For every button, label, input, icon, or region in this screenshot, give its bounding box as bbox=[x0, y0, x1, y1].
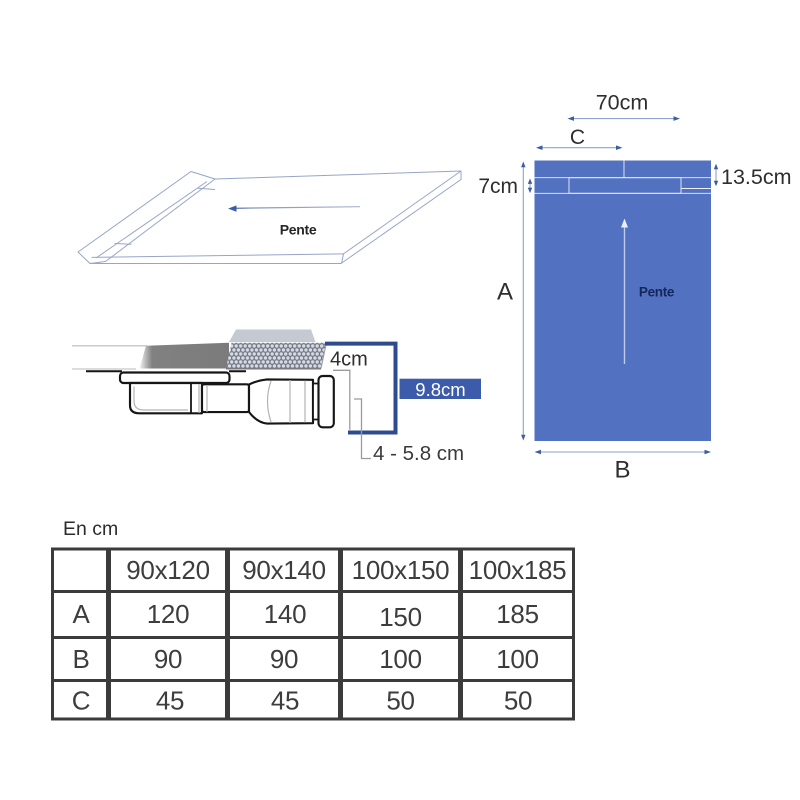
svg-text:50: 50 bbox=[504, 686, 532, 716]
svg-text:En cm: En cm bbox=[63, 518, 118, 540]
svg-text:9.8cm: 9.8cm bbox=[415, 379, 465, 400]
svg-text:100x150: 100x150 bbox=[352, 555, 450, 585]
svg-text:140: 140 bbox=[264, 599, 306, 629]
svg-text:C: C bbox=[570, 126, 585, 149]
svg-text:90: 90 bbox=[270, 644, 298, 674]
svg-text:7cm: 7cm bbox=[478, 175, 518, 198]
svg-text:90x120: 90x120 bbox=[126, 555, 210, 585]
svg-text:4 - 5.8 cm: 4 - 5.8 cm bbox=[373, 442, 464, 465]
svg-text:A: A bbox=[72, 599, 90, 629]
svg-text:100: 100 bbox=[379, 644, 421, 674]
svg-text:90: 90 bbox=[154, 644, 182, 674]
svg-text:B: B bbox=[72, 644, 89, 674]
svg-text:150: 150 bbox=[379, 602, 421, 632]
svg-text:45: 45 bbox=[271, 686, 299, 716]
svg-text:Pente: Pente bbox=[639, 285, 675, 300]
svg-text:50: 50 bbox=[386, 686, 414, 716]
svg-text:70cm: 70cm bbox=[596, 91, 649, 115]
svg-text:4cm: 4cm bbox=[330, 349, 368, 371]
svg-text:A: A bbox=[497, 279, 513, 306]
svg-text:C: C bbox=[72, 686, 90, 716]
svg-text:Pente: Pente bbox=[280, 222, 317, 238]
svg-text:100x185: 100x185 bbox=[469, 555, 567, 585]
svg-text:45: 45 bbox=[156, 686, 184, 716]
svg-text:100: 100 bbox=[496, 644, 538, 674]
svg-text:13.5cm: 13.5cm bbox=[721, 165, 792, 189]
svg-text:120: 120 bbox=[147, 599, 189, 629]
svg-text:185: 185 bbox=[496, 599, 538, 629]
svg-text:90x140: 90x140 bbox=[242, 555, 326, 585]
svg-text:B: B bbox=[614, 457, 630, 484]
